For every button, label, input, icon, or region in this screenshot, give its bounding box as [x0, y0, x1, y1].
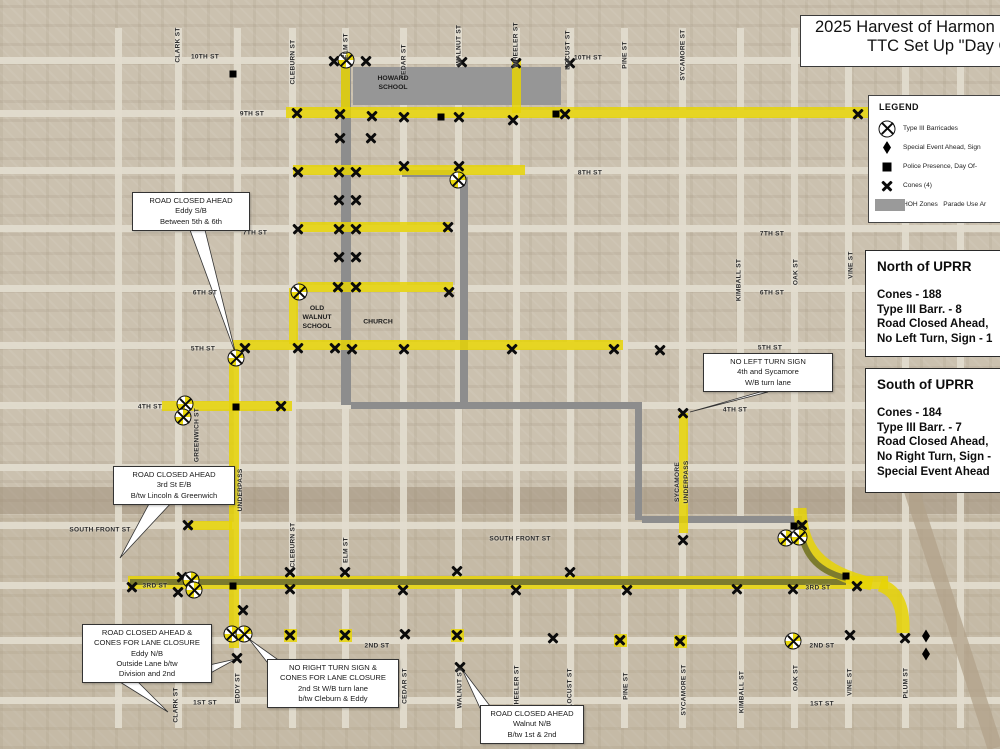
street-label-vertical: VINE ST [846, 251, 855, 278]
map-title-box: 2025 Harvest of Harmon TTC Set Up "Day O [800, 15, 1000, 67]
cone-marker [731, 583, 743, 595]
street-label-vertical: VINE ST [845, 668, 854, 695]
cone-marker [231, 652, 243, 664]
cone-marker [182, 519, 194, 531]
street-label-vertical: SYCAMORE UNDERPASS [673, 460, 691, 503]
cone-marker [284, 629, 296, 641]
police-presence-marker [843, 573, 850, 580]
type3-barricade-marker [175, 409, 192, 426]
cone-marker [339, 566, 351, 578]
street-label: 2ND ST [365, 643, 390, 650]
cone-marker [333, 194, 345, 206]
cone-marker [350, 281, 362, 293]
legend-heading: LEGEND [879, 102, 1000, 112]
street-label-vertical: SYCAMORE ST [679, 665, 688, 716]
panel-north-title: North of UPRR [877, 259, 1000, 274]
police-presence-marker [791, 523, 798, 530]
street-label-vertical: PLUM ST [901, 668, 910, 699]
cone-marker [677, 534, 689, 546]
street-label: 3RD ST [806, 585, 831, 592]
street-road [175, 28, 182, 728]
cone-marker [292, 166, 304, 178]
cone-marker [237, 604, 249, 616]
cone-marker [292, 342, 304, 354]
street-road [679, 28, 686, 728]
cone-marker [674, 635, 686, 647]
street-label-vertical: PINE ST [621, 672, 630, 699]
place-label: HOWARD SCHOOL [378, 74, 409, 92]
street-label-vertical: ELM ST [341, 33, 350, 59]
cone-marker [787, 583, 799, 595]
type3-barricade-marker [186, 582, 203, 599]
cone-marker [547, 632, 559, 644]
cone-marker [851, 580, 863, 592]
street-label: 9TH ST [240, 111, 264, 118]
barricade-icon [879, 120, 896, 137]
place-label: CHURCH [363, 317, 392, 326]
cone-marker [398, 343, 410, 355]
cone-marker [126, 581, 138, 593]
closure-route-segment [188, 521, 232, 530]
street-label-vertical: GREENWICH ST [192, 408, 201, 462]
street-label: 2ND ST [810, 643, 835, 650]
street-label-vertical: WHEELER ST [511, 22, 520, 68]
cone-marker [350, 223, 362, 235]
callout-box: ROAD CLOSED AHEAD & CONES FOR LANE CLOSU… [82, 624, 212, 683]
zone-swatch-icon [875, 199, 905, 211]
parade-route-segment [635, 402, 642, 520]
street-label: 5TH ST [758, 345, 782, 352]
street-road [513, 28, 520, 728]
cone-marker [333, 251, 345, 263]
street-label: 1ST ST [193, 700, 217, 707]
street-label-vertical: WHEELER ST [512, 665, 521, 711]
cone-marker [614, 634, 626, 646]
street-road [115, 28, 122, 728]
cone-marker [451, 565, 463, 577]
cone-marker [608, 343, 620, 355]
type3-barricade-marker [228, 350, 245, 367]
cone-marker [329, 342, 341, 354]
street-road [567, 28, 574, 728]
cone-marker [366, 110, 378, 122]
callout-box: ROAD CLOSED AHEAD Walnut N/B B/tw 1st & … [480, 705, 584, 744]
street-label-vertical: CLARK ST [171, 687, 180, 722]
street-label: SOUTH FRONT ST [69, 527, 130, 534]
cone-marker [506, 343, 518, 355]
cone-marker [559, 108, 571, 120]
street-label-vertical: LOCUST ST [563, 30, 572, 70]
cone-marker [507, 114, 519, 126]
legend: LEGEND Type III Barricades Special Event… [868, 95, 1000, 223]
police-presence-marker [553, 111, 560, 118]
panel-south-title: South of UPRR [877, 377, 1000, 392]
panel-south-lines: Cones - 184 Type III Barr. - 7 Road Clos… [877, 406, 1000, 480]
ttc-map-page: 2025 Harvest of Harmon TTC Set Up "Day O… [0, 0, 1000, 749]
cone-icon [881, 180, 893, 192]
callout-box: ROAD CLOSED AHEAD Eddy S/B Between 5th &… [132, 192, 250, 231]
cone-marker [564, 566, 576, 578]
street-label: 6TH ST [760, 290, 784, 297]
diamond-icon [883, 141, 891, 154]
type3-barricade-marker [236, 626, 253, 643]
callout-box: NO RIGHT TURN SIGN & CONES FOR LANE CLOS… [267, 659, 399, 708]
parade-route-segment [642, 516, 802, 523]
cone-marker [346, 343, 358, 355]
legend-item-barricades: Type III Barricades [879, 119, 1000, 138]
cone-marker [334, 108, 346, 120]
cone-marker [844, 629, 856, 641]
cone-marker [453, 111, 465, 123]
street-label-vertical: KIMBALL ST [734, 259, 743, 301]
cone-marker [852, 108, 864, 120]
street-label: 3RD ST [143, 583, 168, 590]
street-label: 7TH ST [760, 231, 784, 238]
police-presence-marker [438, 114, 445, 121]
cone-marker [284, 583, 296, 595]
legend-item-special-event: Special Event Ahead, Sign [879, 138, 1000, 157]
cone-marker [398, 160, 410, 172]
street-label-vertical: WALNUT ST [455, 668, 464, 709]
street-road [621, 28, 628, 728]
street-label: 10TH ST [191, 54, 219, 61]
police-presence-marker [230, 583, 237, 590]
street-label-vertical: WALNUT ST [454, 25, 463, 66]
street-label-vertical: CEDAR ST [400, 668, 409, 704]
cone-marker [284, 566, 296, 578]
cone-marker [443, 286, 455, 298]
type3-barricade-marker [450, 172, 467, 189]
cone-marker [397, 584, 409, 596]
cone-marker [654, 344, 666, 356]
street-label: 5TH ST [191, 346, 215, 353]
type3-barricade-marker [785, 633, 802, 650]
street-label: 4TH ST [723, 407, 747, 414]
street-road [400, 28, 407, 728]
closure-route-segment [300, 222, 450, 232]
closure-route-segment [298, 282, 453, 292]
cone-marker [350, 194, 362, 206]
panel-south-of-uprr: South of UPRR Cones - 184 Type III Barr.… [865, 368, 1000, 493]
street-label-vertical: CLEBURN ST [288, 523, 297, 568]
cone-marker [453, 160, 465, 172]
cone-marker [899, 632, 911, 644]
street-road [289, 28, 296, 728]
street-label: 8TH ST [578, 170, 602, 177]
cone-marker [333, 223, 345, 235]
cone-marker [442, 221, 454, 233]
cone-marker [365, 132, 377, 144]
street-road [845, 28, 852, 728]
cone-marker [334, 132, 346, 144]
panel-north-lines: Cones - 188 Type III Barr. - 8 Road Clos… [877, 288, 1000, 347]
street-label-vertical: OAK ST [791, 259, 800, 285]
street-label-vertical: OAK ST [791, 665, 800, 691]
parade-route-segment [460, 177, 468, 405]
square-icon [883, 162, 892, 171]
street-road [0, 522, 1000, 529]
callout-box: ROAD CLOSED AHEAD 3rd St E/B B/tw Lincol… [113, 466, 235, 505]
legend-item-hoh-zones: HOH Zones Parade Use Ar [879, 195, 1000, 214]
street-label-vertical: SYCAMORE ST [678, 30, 687, 81]
cone-marker [399, 628, 411, 640]
street-label: SOUTH FRONT ST [489, 536, 550, 543]
street-label-vertical: LOCUST ST [565, 668, 574, 708]
cone-marker [677, 407, 689, 419]
parade-route-segment [351, 402, 641, 409]
map-title-line1: 2025 Harvest of Harmon [815, 18, 1000, 37]
street-label-vertical: CLARK ST [173, 27, 182, 62]
cone-marker [621, 584, 633, 596]
legend-item-cones: Cones (4) [879, 176, 1000, 195]
panel-north-of-uprr: North of UPRR Cones - 188 Type III Barr.… [865, 250, 1000, 357]
type3-barricade-marker [791, 529, 808, 546]
street-label-vertical: PINE ST [620, 41, 629, 68]
cone-marker [350, 166, 362, 178]
cone-marker [275, 400, 287, 412]
cone-marker [398, 111, 410, 123]
cone-marker [350, 251, 362, 263]
cone-marker [332, 281, 344, 293]
callout-box: NO LEFT TURN SIGN 4th and Sycamore W/B t… [703, 353, 833, 392]
cone-marker [292, 223, 304, 235]
police-presence-marker [233, 404, 240, 411]
place-label: OLD WALNUT SCHOOL [302, 304, 331, 332]
street-label-vertical: KIMBALL ST [737, 671, 746, 713]
cone-marker [291, 107, 303, 119]
street-label-vertical: EDDY ST [233, 673, 242, 703]
street-road [0, 285, 1000, 292]
cone-marker [510, 584, 522, 596]
street-label: 6TH ST [193, 290, 217, 297]
cone-marker [451, 629, 463, 641]
map-title-line2: TTC Set Up "Day O [815, 37, 1000, 56]
cone-marker [172, 586, 184, 598]
street-label: 1ST ST [810, 701, 834, 708]
street-label: 4TH ST [138, 404, 162, 411]
type3-barricade-marker [291, 284, 308, 301]
cone-marker [333, 166, 345, 178]
street-label-vertical: ELM ST [341, 537, 350, 563]
police-presence-marker [230, 71, 237, 78]
street-label-vertical: CLEBURN ST [288, 40, 297, 85]
legend-item-police: Police Presence, Day Of- [879, 157, 1000, 176]
street-label: 10TH ST [574, 55, 602, 62]
cone-marker [360, 55, 372, 67]
cone-marker [339, 629, 351, 641]
street-road [0, 697, 1000, 704]
